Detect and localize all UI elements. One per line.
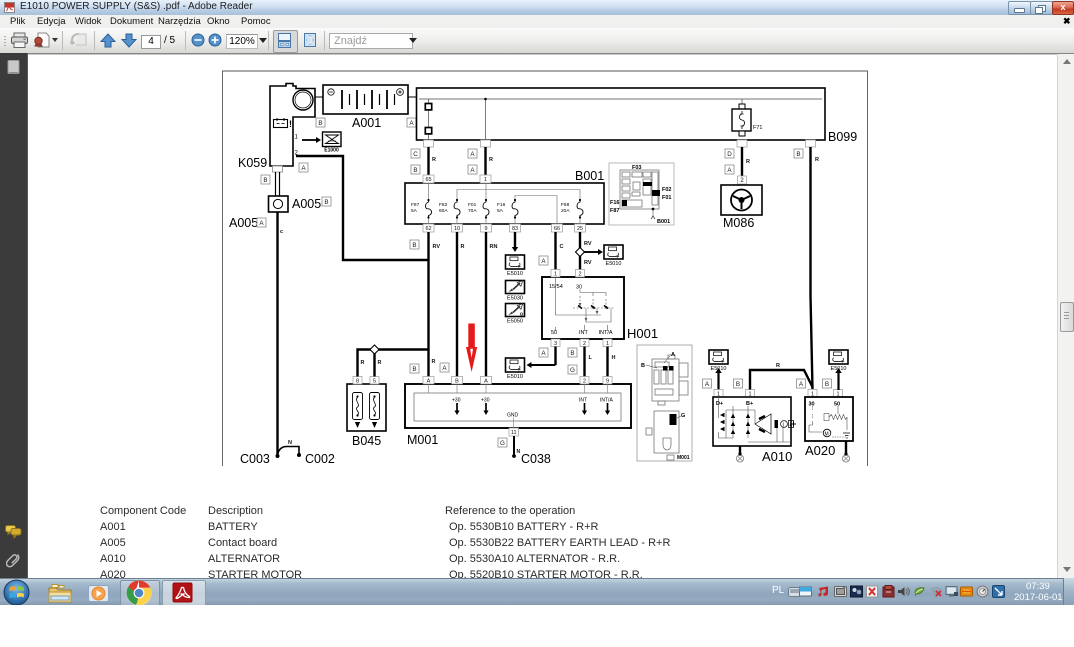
svg-text:B001: B001	[575, 169, 604, 183]
svg-text:G: G	[570, 367, 575, 374]
svg-text:1: 1	[554, 271, 557, 277]
svg-text:R: R	[461, 244, 465, 250]
svg-text:GND: GND	[507, 413, 519, 419]
svg-text:RN: RN	[490, 244, 498, 250]
svg-text:B: B	[412, 242, 416, 249]
svg-text:1: 1	[295, 135, 299, 141]
svg-text:C: C	[413, 151, 418, 158]
svg-text:A005: A005	[229, 216, 258, 230]
svg-text:INT/A: INT/A	[599, 330, 613, 336]
svg-text:E5030: E5030	[507, 296, 523, 302]
svg-text:2: 2	[583, 341, 586, 347]
svg-text:66: 66	[554, 226, 560, 232]
svg-text:B: B	[263, 177, 267, 184]
svg-text:R: R	[432, 359, 436, 365]
svg-text:3: 3	[554, 341, 557, 347]
svg-text:B: B	[570, 350, 574, 357]
svg-text:N: N	[517, 449, 521, 455]
svg-text:A001: A001	[352, 116, 381, 130]
svg-text:R: R	[432, 157, 436, 163]
svg-text:F82: F82	[439, 202, 448, 208]
svg-text:83: 83	[512, 226, 518, 232]
svg-text:B: B	[736, 381, 740, 388]
svg-text:A: A	[484, 378, 488, 384]
svg-text:9: 9	[484, 226, 487, 232]
svg-text:C: C	[560, 244, 564, 250]
svg-text:20A: 20A	[561, 208, 570, 214]
svg-text:E5050: E5050	[507, 319, 523, 325]
svg-text:30: 30	[576, 285, 582, 291]
svg-text:E5010: E5010	[507, 271, 523, 277]
svg-text:B: B	[412, 366, 416, 373]
svg-text:RV: RV	[584, 260, 592, 266]
svg-text:62: 62	[425, 226, 431, 232]
svg-text:A005: A005	[292, 197, 321, 211]
svg-text:B+: B+	[746, 401, 753, 407]
svg-text:N: N	[288, 440, 292, 446]
svg-text:INT/A: INT/A	[600, 398, 613, 404]
svg-text:B045: B045	[352, 434, 381, 448]
svg-text:A: A	[671, 352, 675, 358]
svg-text:B: B	[324, 199, 328, 206]
svg-text:M001: M001	[407, 433, 438, 447]
svg-text:B: B	[413, 167, 417, 174]
svg-text:RV: RV	[584, 241, 592, 247]
svg-text:65: 65	[425, 177, 431, 183]
svg-text:70A: 70A	[468, 208, 477, 214]
svg-text:R: R	[489, 157, 493, 163]
svg-text:B001: B001	[657, 219, 670, 225]
svg-text:D: D	[727, 151, 732, 158]
svg-text:50: 50	[551, 330, 557, 336]
svg-text:R: R	[776, 363, 780, 369]
svg-text:B: B	[641, 363, 645, 369]
svg-text:A: A	[427, 378, 431, 384]
svg-text:F16: F16	[610, 200, 619, 206]
svg-text:F87: F87	[411, 202, 420, 208]
svg-text:L: L	[589, 355, 593, 361]
svg-text:B: B	[455, 378, 459, 384]
svg-text:D+: D+	[716, 401, 723, 407]
svg-text:F02: F02	[662, 187, 671, 193]
svg-text:!: !	[289, 119, 292, 129]
svg-text:F68: F68	[561, 202, 570, 208]
svg-text:5A: 5A	[411, 208, 418, 214]
svg-text:C003: C003	[240, 452, 270, 466]
svg-text:1: 1	[606, 341, 609, 347]
svg-text:INT: INT	[579, 398, 587, 404]
svg-text:5A: 5A	[497, 208, 504, 214]
svg-text:F87: F87	[610, 208, 619, 214]
svg-text:E5010: E5010	[606, 261, 622, 267]
svg-text:+30: +30	[481, 398, 490, 404]
svg-text:M086: M086	[723, 216, 754, 230]
svg-text:I: I	[783, 423, 784, 429]
svg-text:30: 30	[809, 402, 815, 408]
svg-text:B: B	[825, 381, 829, 388]
svg-text:C038: C038	[521, 452, 551, 466]
svg-text:5: 5	[373, 378, 376, 384]
svg-text:R: R	[361, 360, 365, 366]
svg-text:8: 8	[356, 378, 359, 384]
svg-text:B099: B099	[828, 130, 857, 144]
svg-text:15/54: 15/54	[549, 284, 563, 290]
svg-text:A020: A020	[805, 443, 835, 458]
svg-text:INT: INT	[579, 330, 589, 336]
svg-text:K059: K059	[238, 156, 267, 170]
svg-text:1: 1	[484, 177, 487, 183]
svg-text:R: R	[815, 157, 819, 163]
svg-text:C002: C002	[305, 452, 335, 466]
svg-text:G: G	[500, 440, 505, 447]
svg-text:F01: F01	[662, 195, 671, 201]
svg-text:25: 25	[577, 226, 583, 232]
svg-text:50: 50	[834, 402, 840, 408]
svg-text:2: 2	[583, 378, 586, 384]
svg-text:9: 9	[606, 378, 609, 384]
svg-text:R: R	[378, 360, 382, 366]
svg-text:E1000: E1000	[324, 148, 339, 154]
svg-text:E5010: E5010	[507, 374, 523, 380]
svg-text:A010: A010	[762, 449, 792, 464]
svg-text:F16: F16	[497, 202, 506, 208]
svg-text:B: B	[318, 120, 322, 127]
svg-text:F71: F71	[753, 125, 762, 131]
svg-text:RV: RV	[433, 244, 441, 250]
svg-text:G: G	[681, 413, 685, 419]
svg-text:H001: H001	[627, 326, 658, 341]
svg-text:F03: F03	[632, 165, 641, 171]
svg-text:F01: F01	[468, 202, 477, 208]
svg-text:B: B	[796, 151, 800, 158]
svg-text:+30: +30	[452, 398, 461, 404]
svg-text:10: 10	[454, 226, 460, 232]
svg-text:M001: M001	[677, 455, 690, 461]
svg-text:11: 11	[511, 430, 517, 436]
svg-text:60A: 60A	[439, 208, 448, 214]
svg-text:c: c	[280, 229, 283, 235]
svg-text:2: 2	[578, 271, 581, 277]
svg-text:M: M	[825, 432, 829, 438]
svg-text:H: H	[612, 355, 616, 361]
svg-text:R: R	[746, 159, 750, 165]
